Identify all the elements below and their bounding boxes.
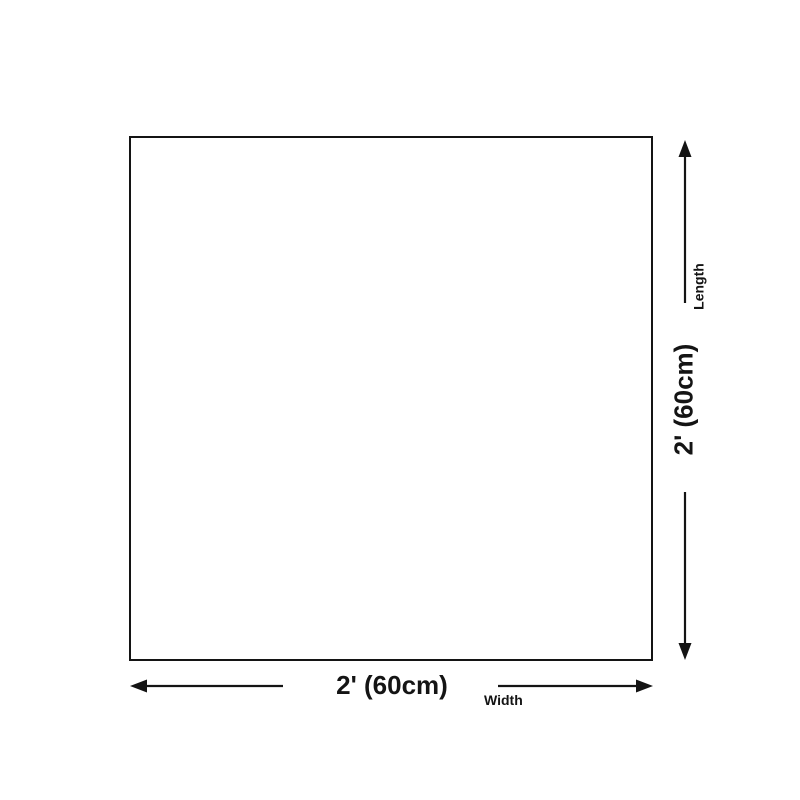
arrow-down-icon xyxy=(679,492,692,660)
dimension-diagram: 2' (60cm) Width 2' (60cm) Length xyxy=(0,0,800,800)
length-dimension-label: Length xyxy=(692,257,707,317)
width-dimension-label: Width xyxy=(484,693,523,708)
product-square-outline xyxy=(129,136,653,661)
length-dimension-value: 2' (60cm) xyxy=(671,340,698,460)
width-dimension-value: 2' (60cm) xyxy=(332,672,452,699)
arrow-right-icon xyxy=(498,680,653,693)
arrow-left-icon xyxy=(130,680,283,693)
